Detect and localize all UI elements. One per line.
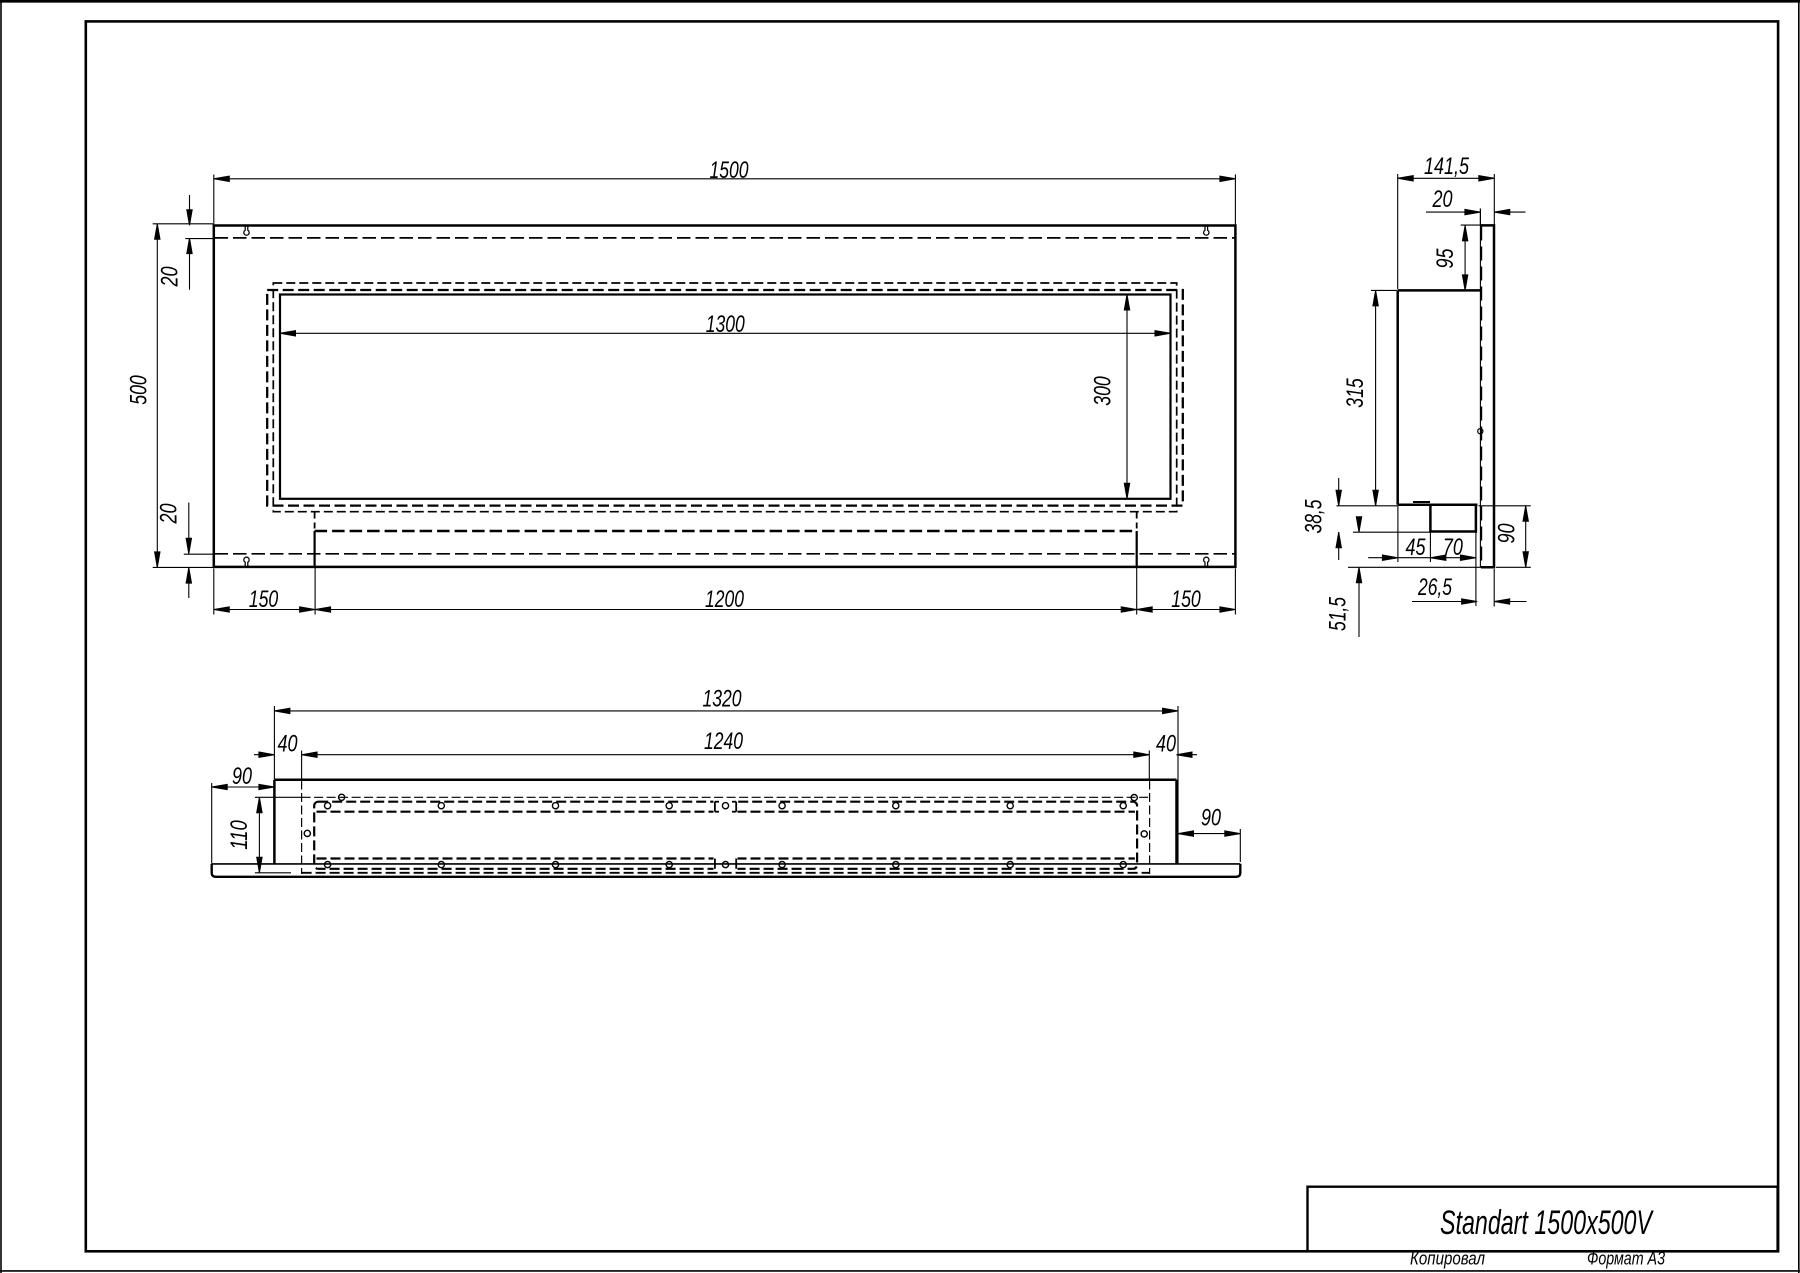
svg-text:40: 40 bbox=[1156, 731, 1176, 758]
svg-text:Standart 1500x500V: Standart 1500x500V bbox=[1440, 1204, 1654, 1242]
svg-text:500: 500 bbox=[126, 375, 153, 405]
svg-text:90: 90 bbox=[232, 763, 252, 790]
svg-text:150: 150 bbox=[249, 586, 279, 613]
svg-text:90: 90 bbox=[1494, 523, 1521, 543]
svg-text:90: 90 bbox=[1201, 805, 1221, 832]
svg-text:40: 40 bbox=[278, 731, 298, 758]
svg-text:Формат А3: Формат А3 bbox=[1587, 1249, 1665, 1269]
svg-text:20: 20 bbox=[1432, 186, 1453, 213]
svg-text:20: 20 bbox=[156, 503, 183, 524]
svg-text:1240: 1240 bbox=[704, 728, 743, 755]
svg-text:51,5: 51,5 bbox=[1325, 597, 1352, 631]
svg-text:1320: 1320 bbox=[703, 685, 742, 712]
svg-text:45: 45 bbox=[1406, 534, 1426, 561]
svg-text:20: 20 bbox=[157, 266, 184, 287]
svg-text:1300: 1300 bbox=[706, 311, 745, 338]
svg-text:300: 300 bbox=[1090, 376, 1117, 406]
svg-text:1500: 1500 bbox=[710, 157, 749, 184]
svg-text:315: 315 bbox=[1342, 378, 1369, 408]
svg-text:150: 150 bbox=[1171, 586, 1201, 613]
svg-text:110: 110 bbox=[226, 820, 253, 850]
svg-text:95: 95 bbox=[1432, 248, 1459, 268]
svg-text:26,5: 26,5 bbox=[1417, 574, 1452, 601]
svg-text:Копировал: Копировал bbox=[1410, 1249, 1485, 1269]
svg-text:70: 70 bbox=[1443, 534, 1463, 561]
svg-text:141,5: 141,5 bbox=[1424, 153, 1469, 180]
svg-text:38,5: 38,5 bbox=[1301, 499, 1328, 533]
svg-text:1200: 1200 bbox=[705, 586, 744, 613]
